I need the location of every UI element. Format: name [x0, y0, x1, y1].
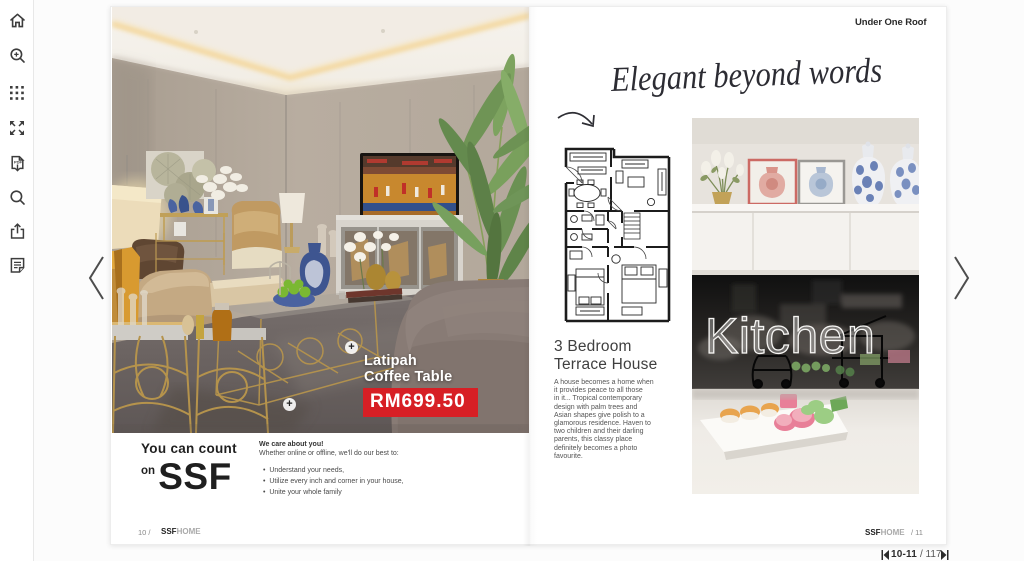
svg-text:PDF: PDF: [14, 160, 23, 165]
svg-text:Kitchen: Kitchen: [705, 308, 875, 364]
